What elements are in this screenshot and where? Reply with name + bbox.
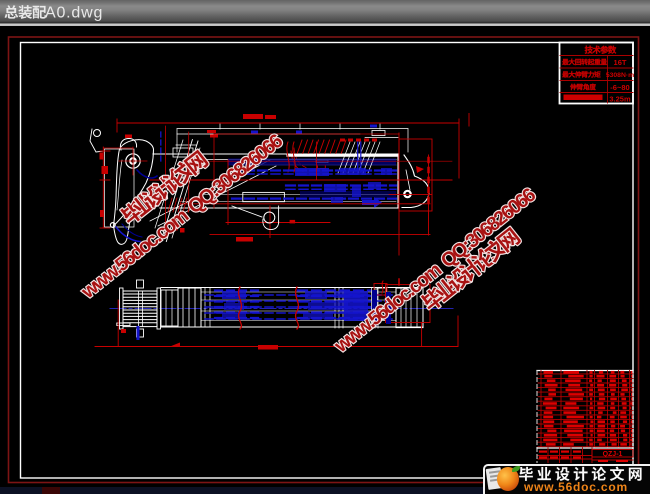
svg-text:www.56doc.com QQ:306826066: www.56doc.com QQ:306826066 [77, 130, 288, 304]
svg-text:3.25m: 3.25m [609, 95, 631, 104]
svg-text:-6~80: -6~80 [610, 83, 629, 92]
svg-text:www.56doc.com QQ:306826066: www.56doc.com QQ:306826066 [330, 184, 541, 358]
svg-text:5308N·m: 5308N·m [606, 72, 634, 79]
svg-text:A0.dwg: A0.dwg [45, 5, 103, 22]
svg-text:16T: 16T [614, 58, 627, 67]
svg-text:QZJ-1: QZJ-1 [603, 451, 623, 458]
